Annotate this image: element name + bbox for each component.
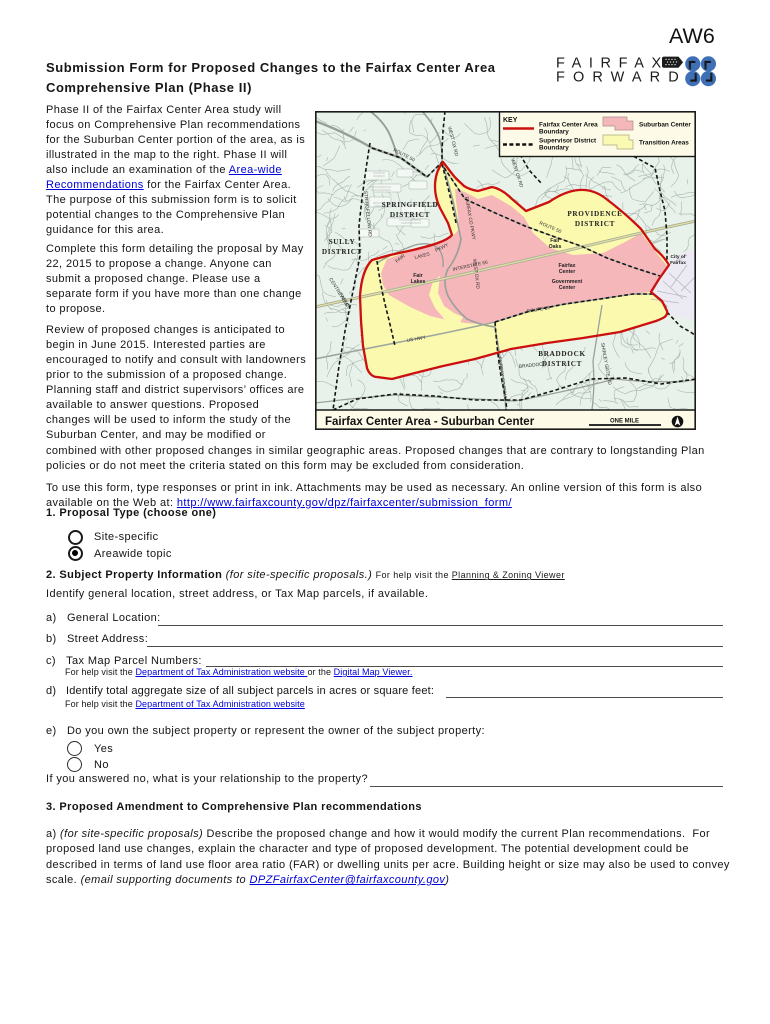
svg-text:Boundary: Boundary [539, 145, 569, 152]
svg-text:BRADDOCK: BRADDOCK [538, 350, 586, 358]
svg-text:SULLY: SULLY [329, 238, 356, 246]
svg-text:Oaks: Oaks [549, 244, 562, 250]
svg-text:FORWARD: FORWARD [556, 70, 687, 86]
svg-text:Boundary: Boundary [539, 129, 569, 136]
svg-text:SPRINGFIELD: SPRINGFIELD [382, 201, 439, 209]
svg-text:Center: Center [559, 269, 575, 275]
svg-text:PROVIDENCE: PROVIDENCE [567, 210, 622, 218]
svg-text:ONE MILE: ONE MILE [610, 419, 639, 425]
svg-text:KEY: KEY [503, 117, 518, 124]
svg-text:Suburban Center: Suburban Center [639, 122, 691, 129]
svg-text:City of: City of [671, 254, 686, 260]
svg-text:DISTRICT: DISTRICT [322, 248, 362, 256]
svg-text:DISTRICT: DISTRICT [542, 360, 582, 368]
svg-text:Fairfax Center Area: Fairfax Center Area [539, 122, 598, 129]
svg-text:Transition Areas: Transition Areas [639, 140, 689, 147]
svg-text:Center: Center [559, 285, 575, 291]
svg-text:Supervisor District: Supervisor District [539, 138, 597, 145]
svg-text:DISTRICT: DISTRICT [390, 211, 430, 219]
svg-text:DISTRICT: DISTRICT [575, 220, 615, 228]
svg-text:Lakes: Lakes [411, 279, 426, 285]
svg-text:Fairfax Center Area - Suburban: Fairfax Center Area - Suburban Center [325, 416, 535, 428]
svg-text:Fairfax: Fairfax [670, 260, 686, 266]
